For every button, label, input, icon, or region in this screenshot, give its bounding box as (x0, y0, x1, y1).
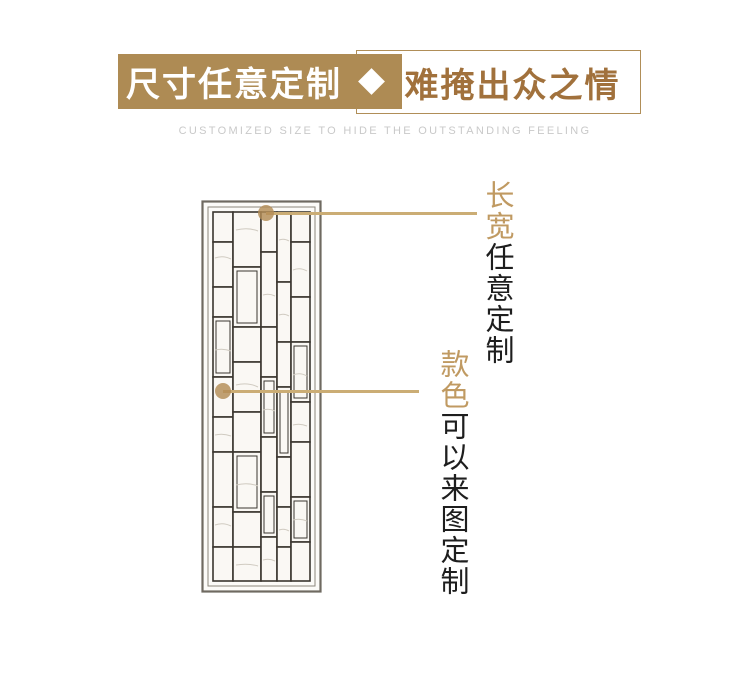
callout-style-detail: 可以来图定制 (436, 411, 468, 597)
callout-text-size: 长宽任意定制 (482, 180, 512, 380)
callout-style-highlight: 款色 (436, 349, 468, 411)
promo-page: 难掩出众之情 尺寸任意定制 CUSTOMIZED SIZE TO HIDE TH… (0, 0, 752, 674)
callout-size-detail: 任意定制 (481, 242, 513, 366)
callout-dot-size (258, 205, 274, 221)
banner-right-label: 难掩出众之情 (377, 58, 621, 107)
banner-left-label: 尺寸任意定制 (126, 57, 394, 106)
callout-size-highlight: 长宽 (481, 180, 513, 242)
banner-left-box: 尺寸任意定制 (118, 54, 402, 109)
callout-dot-style (215, 383, 231, 399)
banner-subtitle: CUSTOMIZED SIZE TO HIDE THE OUTSTANDING … (0, 125, 752, 137)
callout-line-style (223, 390, 419, 393)
callout-line-size (266, 212, 477, 215)
callout-text-style: 款色可以来图定制 (437, 349, 467, 609)
